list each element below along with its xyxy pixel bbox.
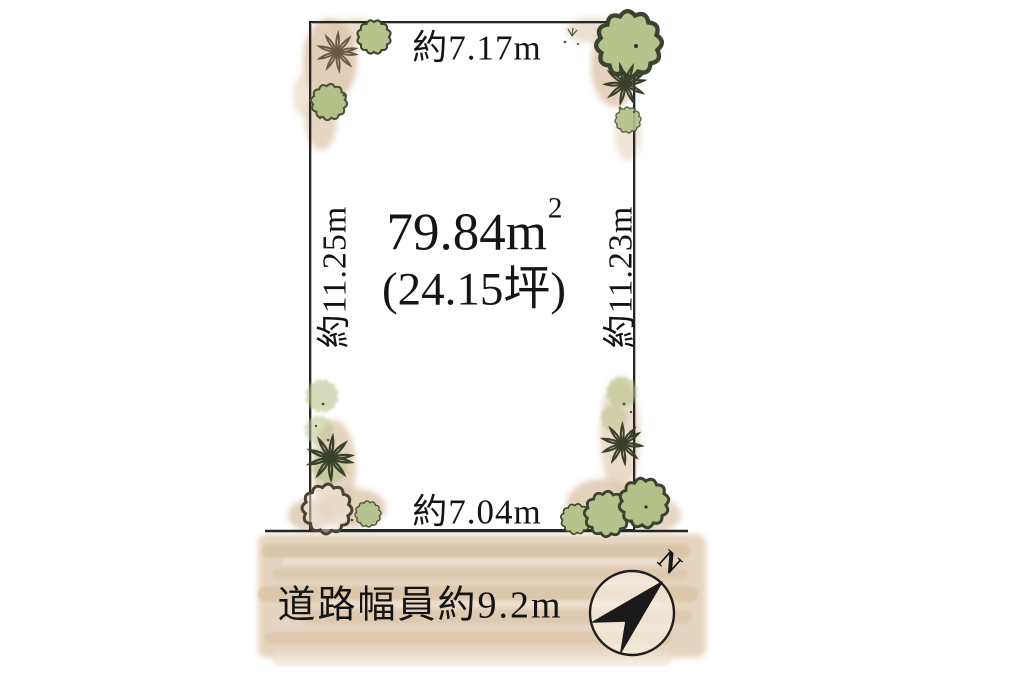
- road-width-label: 道路幅員約9.2m: [277, 574, 562, 629]
- corner-plants-bottom-right: [556, 377, 676, 541]
- bush-icon: [357, 20, 390, 53]
- left-dimension-label: 約11.25m: [307, 206, 356, 349]
- compass: [590, 571, 674, 655]
- area-square-meters: 79.84m2: [382, 194, 566, 262]
- area-label: 79.84m2 (24.15坪): [382, 194, 566, 319]
- top-dimension-label: 約7.17m: [412, 20, 541, 71]
- bottom-dimension-label: 約7.04m: [412, 484, 541, 535]
- area-tsubo: (24.15坪): [382, 261, 566, 318]
- right-dimension-label: 約11.23m: [593, 206, 642, 349]
- land-plot-diagram: 約7.17m 約11.25m 約11.23m 79.84m2 (24.15坪) …: [0, 0, 1024, 687]
- superscript-2: 2: [548, 193, 563, 225]
